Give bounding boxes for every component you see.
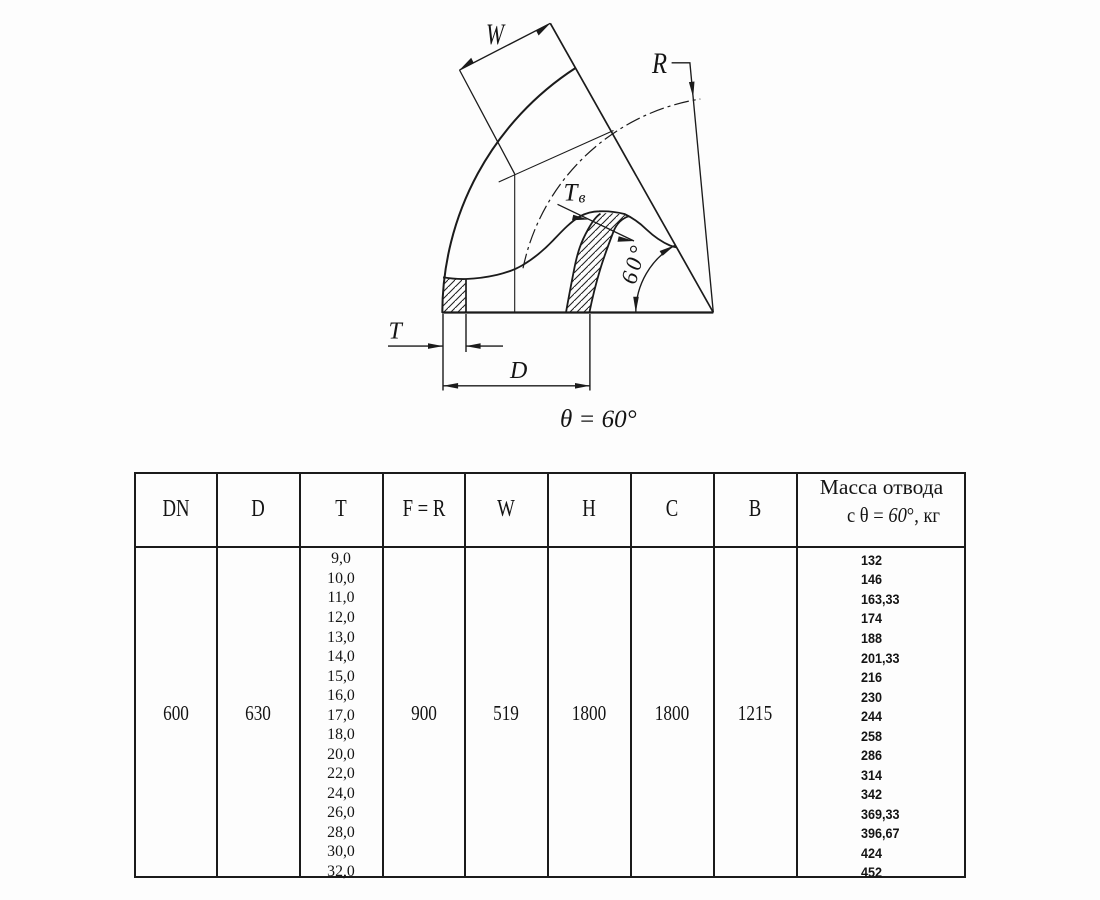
svg-text:60°: 60°: [616, 240, 651, 286]
svg-text:W: W: [486, 18, 506, 51]
svg-text:T: T: [564, 180, 580, 207]
svg-text:R: R: [651, 47, 667, 80]
svg-text:D: D: [509, 358, 527, 384]
svg-text:θ = 60°: θ = 60°: [560, 406, 637, 433]
svg-text:в: в: [579, 190, 586, 207]
svg-text:T: T: [389, 319, 404, 345]
